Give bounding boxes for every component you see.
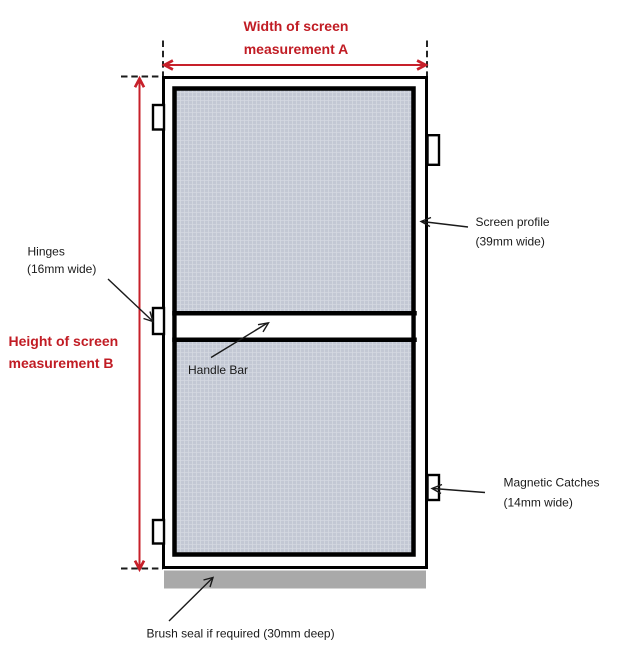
svg-text:measurement B: measurement B — [9, 355, 114, 371]
svg-text:Screen profile: Screen profile — [476, 215, 550, 229]
svg-text:measurement A: measurement A — [244, 41, 349, 57]
svg-text:(39mm wide): (39mm wide) — [476, 235, 545, 249]
svg-text:Height of screen: Height of screen — [9, 333, 119, 349]
svg-text:Width of screen: Width of screen — [244, 18, 349, 34]
svg-text:Hinges: Hinges — [28, 244, 65, 258]
svg-text:Magnetic Catches: Magnetic Catches — [504, 476, 600, 490]
svg-text:(14mm wide): (14mm wide) — [504, 495, 573, 509]
svg-text:Handle Bar: Handle Bar — [188, 363, 248, 377]
svg-text:Brush seal if required (30mm d: Brush seal if required (30mm deep) — [147, 627, 335, 641]
svg-text:(16mm wide): (16mm wide) — [27, 262, 96, 276]
